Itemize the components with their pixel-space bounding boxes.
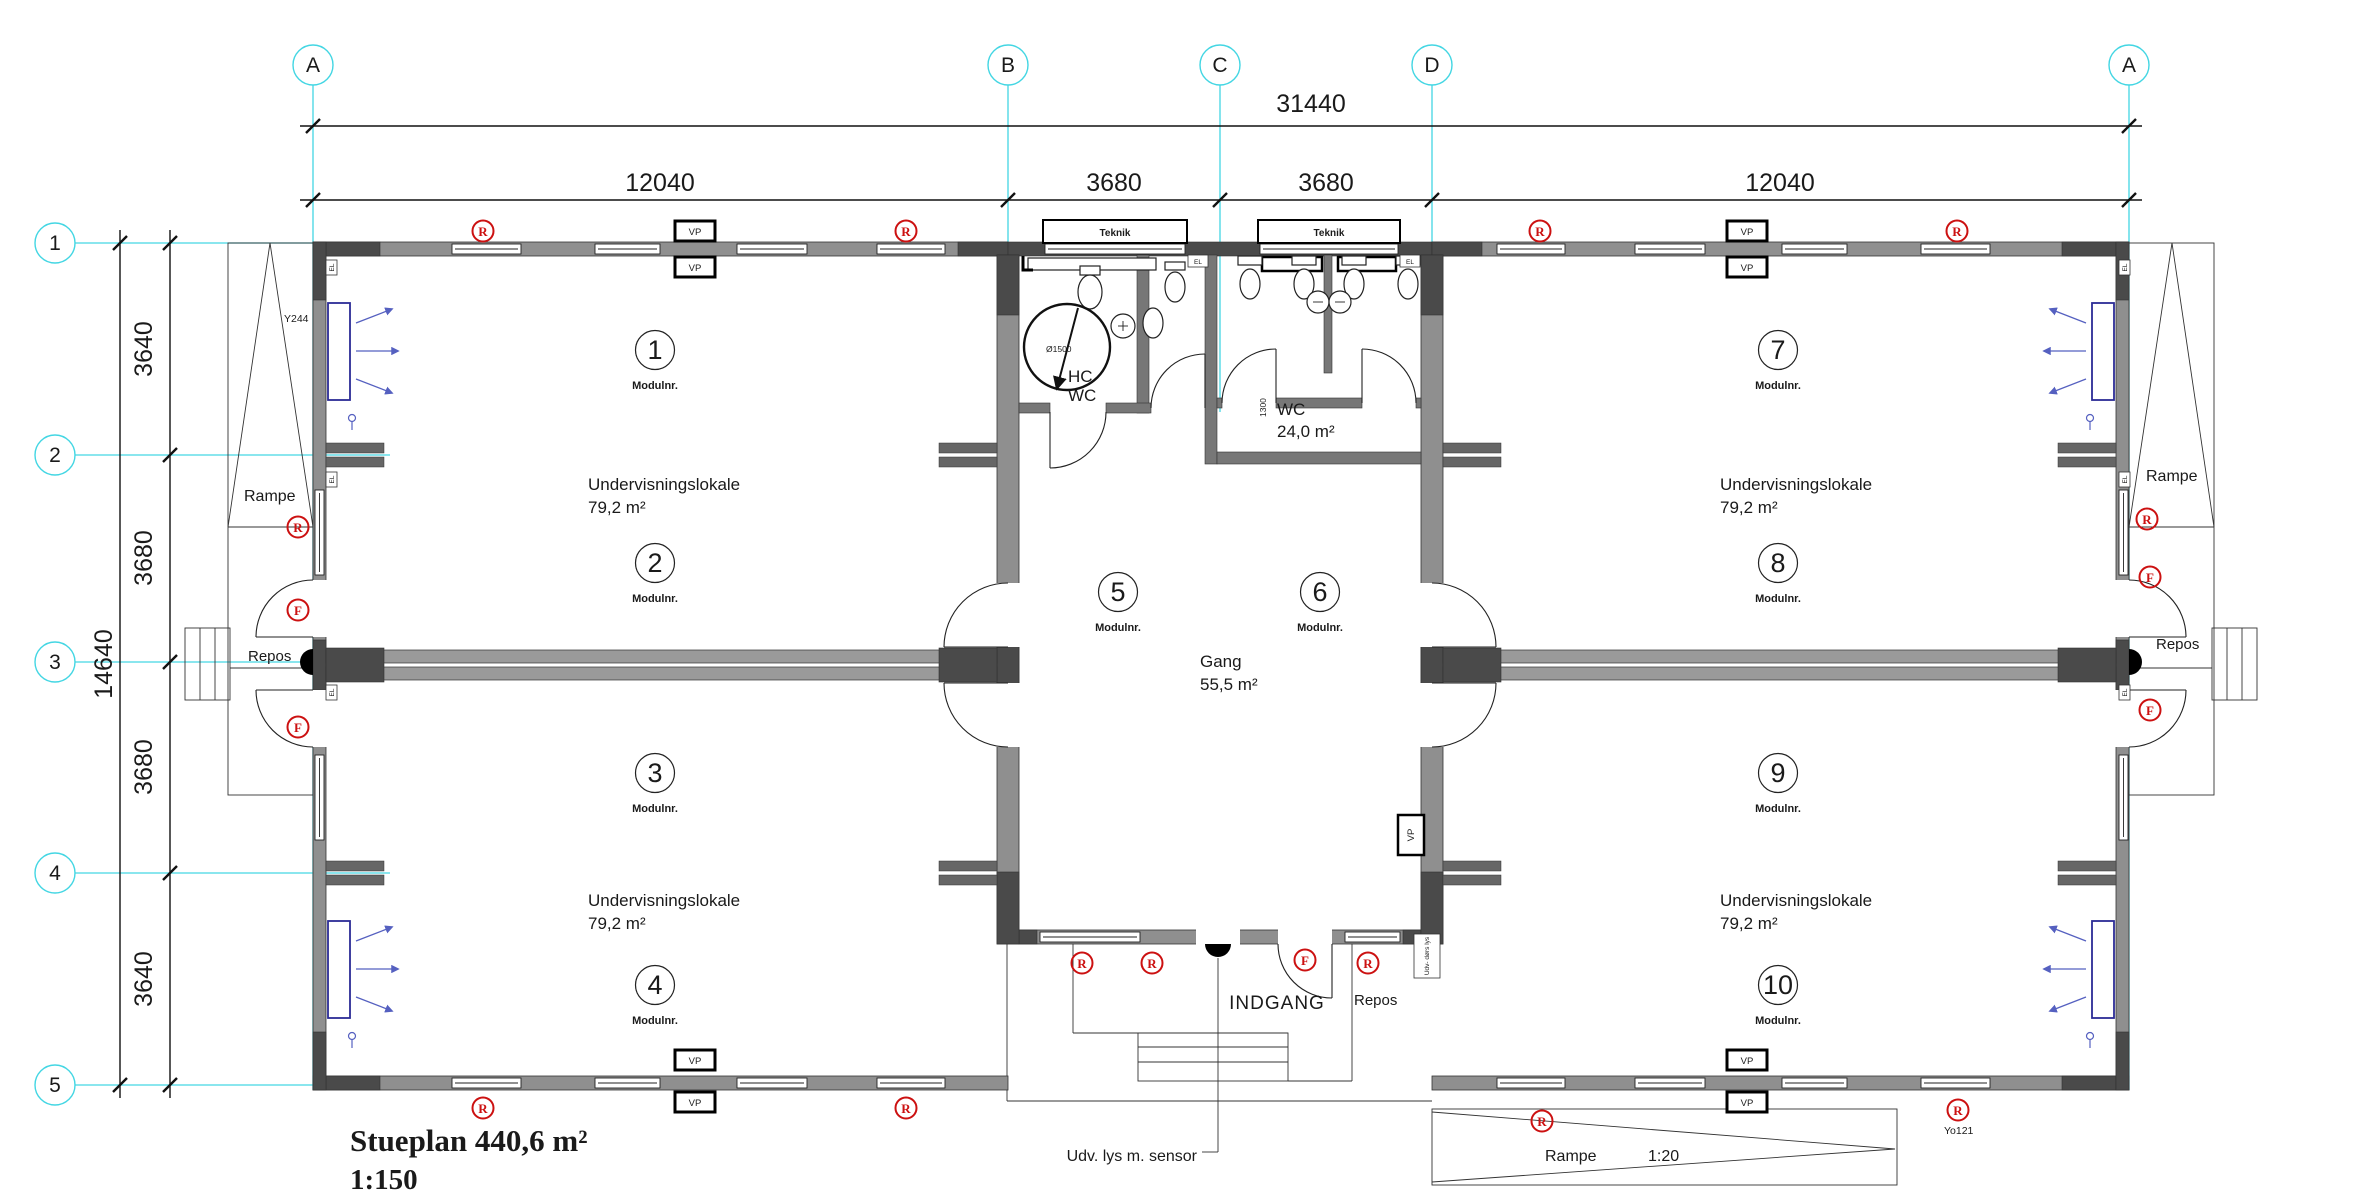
svg-text:79,2 m²: 79,2 m² [588, 914, 646, 933]
vp-label: VP [689, 227, 702, 238]
svg-text:Gang: Gang [1200, 652, 1242, 671]
symbol-f: F [1295, 950, 1316, 971]
svg-text:10: 10 [1763, 970, 1793, 1000]
rampe-left-label: Rampe [244, 488, 296, 505]
svg-text:R: R [478, 224, 488, 239]
svg-text:79,2 m²: 79,2 m² [1720, 498, 1778, 517]
teknik-label-1: Teknik [1100, 228, 1131, 239]
svg-text:Modulnr.: Modulnr. [632, 1015, 678, 1027]
teknik-label-2: Teknik [1314, 228, 1345, 239]
svg-text:Undervisningslokale: Undervisningslokale [1720, 891, 1872, 910]
dim-span-34: 3680 [130, 739, 158, 795]
svg-text:Undervisningslokale: Undervisningslokale [1720, 475, 1872, 494]
svg-text:R: R [1953, 1103, 1963, 1118]
svg-text:5: 5 [1110, 577, 1125, 607]
vp-label: VP [689, 1098, 702, 1109]
svg-text:Modulnr.: Modulnr. [1755, 1015, 1801, 1027]
svg-text:Undervisningslokale: Undervisningslokale [588, 475, 740, 494]
hcwc-label: HC WC [1068, 367, 1096, 405]
svg-text:R: R [478, 1101, 488, 1116]
svg-text:7: 7 [1770, 335, 1785, 365]
svg-text:R: R [2142, 512, 2152, 527]
ramp-label: Rampe [1545, 1148, 1597, 1165]
svg-text:9: 9 [1770, 758, 1785, 788]
symbol-r: R [1358, 953, 1379, 974]
module-3: 3Modulnr. [632, 754, 678, 816]
room-labels: Undervisningslokale 79,2 m² Undervisning… [588, 344, 1872, 933]
dim-span-12: 3640 [130, 321, 158, 377]
grid-row-2: 2 [49, 444, 61, 467]
module-7: 7Modulnr. [1755, 331, 1801, 393]
symbol-f: F [2140, 700, 2161, 721]
svg-text:R: R [1535, 224, 1545, 239]
vp-label: VP [1741, 1098, 1754, 1109]
smartboard-room4 [328, 921, 398, 1048]
svg-text:2: 2 [647, 548, 662, 578]
dim-total-height: 14640 [90, 629, 118, 699]
vp-label: VP [1741, 1056, 1754, 1067]
floor-plan-drawing: 31440 12040 3680 3680 12040 14640 3640 3… [0, 0, 2367, 1193]
grid-col-c: C [1212, 54, 1227, 77]
rampe-right-label: Rampe [2146, 468, 2198, 485]
el-label: EL [329, 475, 336, 483]
smartboard-room10 [2044, 921, 2114, 1048]
svg-text:8: 8 [1770, 548, 1785, 578]
vp-label: VP [1741, 263, 1754, 274]
svg-text:HC: HC [1068, 367, 1093, 386]
symbol-r: R [1072, 953, 1093, 974]
svg-text:Modulnr.: Modulnr. [1095, 622, 1141, 634]
dim-span-45: 3640 [130, 951, 158, 1007]
symbol-r: R [1947, 221, 1968, 242]
turning-circle-label: Ø1500 [1046, 344, 1072, 354]
module-2: 2Modulnr. [632, 544, 678, 606]
svg-text:F: F [1301, 953, 1309, 968]
grid-col-a-left: A [306, 54, 320, 77]
el-label: EL [329, 263, 336, 271]
title-text: Stueplan 440,6 m² [350, 1123, 588, 1158]
classroom-label-bottom-right: Undervisningslokale 79,2 m² [1720, 891, 1872, 933]
grid-col-a-right: A [2122, 54, 2136, 77]
svg-text:Modulnr.: Modulnr. [1755, 380, 1801, 392]
symbol-r: R [1530, 221, 1551, 242]
svg-text:R: R [901, 1101, 911, 1116]
vp-label-rotated: VP [1406, 829, 1417, 842]
el-label: EL [2122, 688, 2129, 696]
svg-text:Modulnr.: Modulnr. [632, 593, 678, 605]
repos-entrance-label: Repos [1354, 992, 1397, 1009]
symbol-r: R [896, 221, 917, 242]
grid-bubbles: A B C D A 1 2 3 4 5 [35, 45, 2149, 1105]
svg-text:Modulnr.: Modulnr. [1297, 622, 1343, 634]
vp-label: VP [689, 1056, 702, 1067]
el-label: EL [329, 688, 336, 696]
svg-text:3: 3 [647, 758, 662, 788]
svg-text:R: R [1537, 1114, 1547, 1129]
svg-text:F: F [2146, 570, 2154, 585]
y244-label: Y244 [284, 313, 309, 325]
floor-plan-page: 31440 12040 3680 3680 12040 14640 3640 3… [0, 0, 2367, 1193]
svg-text:WC: WC [1277, 400, 1305, 419]
drawing-title: Stueplan 440,6 m² 1:150 [350, 1123, 588, 1193]
module-5: 5Modulnr. [1095, 573, 1141, 635]
module-10: 10Modulnr. [1755, 966, 1801, 1028]
svg-text:R: R [901, 224, 911, 239]
svg-text:Modulnr.: Modulnr. [1755, 803, 1801, 815]
svg-text:F: F [2146, 703, 2154, 718]
bottom-right-ramp [1432, 1109, 1897, 1185]
svg-text:R: R [1363, 956, 1373, 971]
udv-lys-label: Udv. lys m. sensor [1067, 1148, 1198, 1165]
module-6: 6Modulnr. [1297, 573, 1343, 635]
vp-label: VP [1741, 227, 1754, 238]
svg-text:Modulnr.: Modulnr. [1755, 593, 1801, 605]
symbol-r: R [473, 1098, 494, 1119]
udv-doors-lys-label: Udv- dørs lys [1424, 936, 1431, 975]
gang-label: Gang 55,5 m² [1200, 652, 1258, 694]
svg-text:R: R [1952, 224, 1962, 239]
symbol-f: F [288, 600, 309, 621]
grid-row-3: 3 [49, 651, 61, 674]
classroom-label-top-right: Undervisningslokale 79,2 m² [1720, 475, 1872, 517]
teknik-boxes: Teknik Teknik [1043, 220, 1400, 243]
svg-text:79,2 m²: 79,2 m² [1720, 914, 1778, 933]
svg-text:79,2 m²: 79,2 m² [588, 498, 646, 517]
el-label: EL [1194, 259, 1202, 266]
svg-text:R: R [1147, 956, 1157, 971]
dim-span-23: 3680 [130, 530, 158, 586]
symbol-r: R [1142, 953, 1163, 974]
symbol-r: R [473, 221, 494, 242]
smartboard-room1 [328, 303, 398, 430]
repos-left-label: Repos [248, 648, 291, 665]
svg-text:WC: WC [1068, 386, 1096, 405]
svg-text:Undervisningslokale: Undervisningslokale [588, 891, 740, 910]
annotations: Rampe Rampe Repos Repos Repos INDGANG Ud… [244, 313, 2199, 1165]
repos-right-label: Repos [2156, 636, 2199, 653]
module-1: 1Modulnr. [632, 331, 678, 393]
symbol-f: F [288, 717, 309, 738]
grid-row-1: 1 [49, 232, 61, 255]
symbol-r: R [896, 1098, 917, 1119]
grid-col-d: D [1424, 54, 1439, 77]
svg-text:Modulnr.: Modulnr. [632, 803, 678, 815]
symbol-r: R [1948, 1100, 1969, 1121]
dim-span-cd: 3680 [1298, 169, 1354, 197]
svg-text:4: 4 [647, 970, 662, 1000]
svg-text:1: 1 [647, 335, 662, 365]
title-scale: 1:150 [350, 1164, 418, 1193]
grid-row-5: 5 [49, 1074, 61, 1097]
smartboard-room7 [2044, 303, 2114, 430]
symbol-f: F [2140, 567, 2161, 588]
wc-depth-dim: 1300 [1258, 398, 1268, 417]
indgang-label: INDGANG [1229, 993, 1325, 1014]
svg-text:F: F [294, 603, 302, 618]
el-label: EL [2122, 475, 2129, 483]
symbol-r: R [2137, 509, 2158, 530]
entrance-porch [1007, 944, 1432, 1152]
svg-text:24,0 m²: 24,0 m² [1277, 422, 1335, 441]
svg-text:6: 6 [1312, 577, 1327, 607]
dim-total-width: 31440 [1276, 90, 1346, 118]
svg-text:F: F [294, 720, 302, 735]
el-label: EL [2122, 263, 2129, 271]
dim-span-da: 12040 [1745, 169, 1815, 197]
dim-span-ab: 12040 [625, 169, 695, 197]
ramp-slope-label: 1:20 [1648, 1148, 1679, 1165]
yo121-label: Yo121 [1944, 1125, 1974, 1137]
svg-text:R: R [1077, 956, 1087, 971]
svg-text:Modulnr.: Modulnr. [632, 380, 678, 392]
svg-text:55,5 m²: 55,5 m² [1200, 675, 1258, 694]
grid-row-4: 4 [49, 862, 61, 885]
grid-col-b: B [1001, 54, 1015, 77]
module-9: 9Modulnr. [1755, 754, 1801, 816]
svg-text:R: R [293, 520, 303, 535]
dim-span-bc: 3680 [1086, 169, 1142, 197]
vp-label: VP [689, 263, 702, 274]
module-4: 4Modulnr. [632, 966, 678, 1028]
el-label: EL [1406, 259, 1414, 266]
left-ramp-platform [185, 243, 313, 795]
classroom-label-bottom-left: Undervisningslokale 79,2 m² [588, 891, 740, 933]
module-8: 8Modulnr. [1755, 544, 1801, 606]
classroom-label-top-left: Undervisningslokale 79,2 m² [588, 475, 740, 517]
